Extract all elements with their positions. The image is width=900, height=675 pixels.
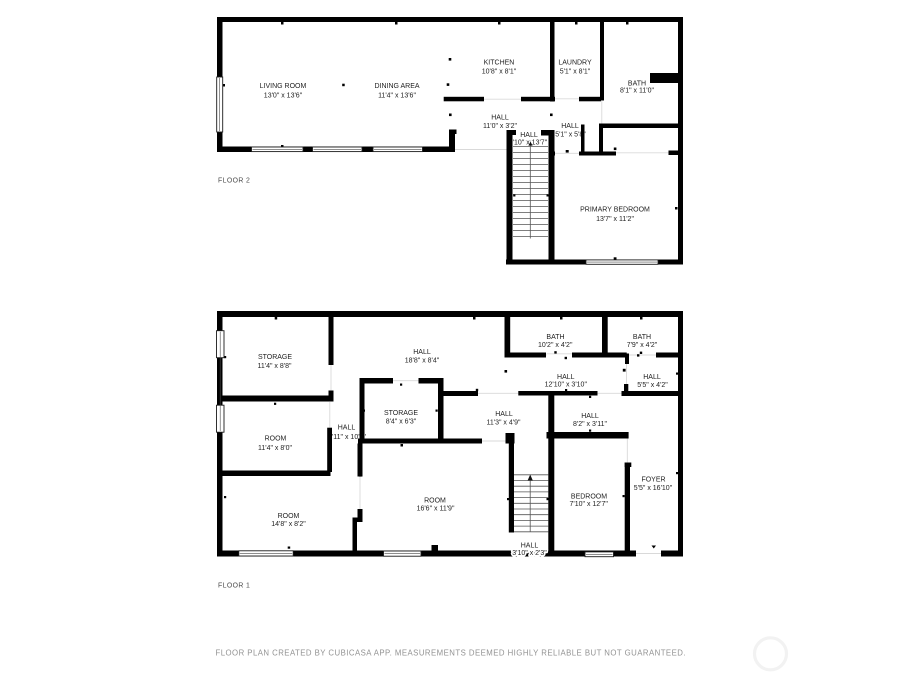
svg-text:7'10" x 12'7": 7'10" x 12'7": [570, 501, 609, 508]
svg-text:HALL: HALL: [520, 132, 538, 139]
svg-text:5'5" x 16'10": 5'5" x 16'10": [634, 485, 673, 492]
svg-text:18'8" x 8'4": 18'8" x 8'4": [405, 358, 440, 365]
svg-text:FLOOR 2: FLOOR 2: [218, 178, 250, 185]
svg-text:13'0" x 13'6": 13'0" x 13'6": [264, 93, 303, 100]
svg-text:8'4" x 6'3": 8'4" x 6'3": [386, 419, 417, 426]
svg-text:10'8" x 8'1": 10'8" x 8'1": [482, 69, 517, 76]
svg-text:PRIMARY BEDROOM: PRIMARY BEDROOM: [580, 207, 650, 214]
svg-text:STORAGE: STORAGE: [384, 410, 418, 417]
svg-text:HALL: HALL: [557, 374, 575, 381]
svg-text:14'8" x 8'2": 14'8" x 8'2": [271, 521, 306, 528]
svg-text:FLOOR 1: FLOOR 1: [218, 583, 250, 590]
svg-text:HALL: HALL: [561, 123, 579, 130]
svg-text:3'10" x 13'7": 3'10" x 13'7": [509, 140, 548, 147]
svg-text:5'5" x 4'2": 5'5" x 4'2": [637, 382, 668, 389]
svg-text:8'2" x 3'11": 8'2" x 3'11": [573, 421, 607, 428]
svg-text:11'4" x 8'0": 11'4" x 8'0": [258, 445, 292, 452]
svg-text:HALL: HALL: [521, 543, 539, 550]
svg-text:ROOM: ROOM: [424, 498, 446, 505]
svg-text:HALL: HALL: [338, 425, 356, 432]
svg-text:FLOOR PLAN CREATED BY CUBICASA: FLOOR PLAN CREATED BY CUBICASA APP. MEAS…: [216, 649, 686, 658]
svg-text:HALL: HALL: [581, 413, 599, 420]
svg-text:12'10" x 3'10": 12'10" x 3'10": [545, 382, 588, 389]
svg-text:DINING AREA: DINING AREA: [374, 83, 419, 90]
svg-text:LIVING ROOM: LIVING ROOM: [260, 83, 307, 90]
svg-text:10'2" x 4'2": 10'2" x 4'2": [538, 342, 573, 349]
svg-text:BATH: BATH: [546, 334, 564, 341]
svg-text:3'10" x 2'3": 3'10" x 2'3": [512, 550, 547, 557]
svg-text:5'1" x 8'1": 5'1" x 8'1": [560, 69, 591, 76]
svg-text:BEDROOM: BEDROOM: [571, 494, 607, 501]
svg-text:13'7" x 11'2": 13'7" x 11'2": [596, 216, 634, 223]
svg-text:FOYER: FOYER: [641, 477, 665, 484]
svg-text:HALL: HALL: [413, 349, 431, 356]
svg-text:HALL: HALL: [643, 374, 661, 381]
svg-text:11'3" x 4'9": 11'3" x 4'9": [487, 420, 521, 427]
svg-text:7'9" x 4'2": 7'9" x 4'2": [627, 342, 658, 349]
svg-text:KITCHEN: KITCHEN: [484, 60, 515, 67]
svg-text:11'0" x 3'2": 11'0" x 3'2": [483, 123, 517, 130]
svg-text:HALL: HALL: [495, 411, 513, 418]
svg-text:11'4" x 13'6": 11'4" x 13'6": [378, 93, 416, 100]
svg-text:STORAGE: STORAGE: [258, 354, 292, 361]
svg-text:HALL: HALL: [491, 115, 509, 122]
svg-text:11'4" x 8'8": 11'4" x 8'8": [258, 363, 292, 370]
svg-text:ROOM: ROOM: [265, 436, 287, 443]
svg-text:BATH: BATH: [633, 334, 651, 341]
svg-text:ROOM: ROOM: [278, 513, 300, 520]
svg-text:8'1" x 11'0": 8'1" x 11'0": [620, 88, 654, 95]
svg-text:LAUNDRY: LAUNDRY: [558, 60, 592, 67]
svg-text:16'6" x 11'9": 16'6" x 11'9": [417, 506, 455, 513]
svg-text:BATH: BATH: [628, 81, 646, 88]
